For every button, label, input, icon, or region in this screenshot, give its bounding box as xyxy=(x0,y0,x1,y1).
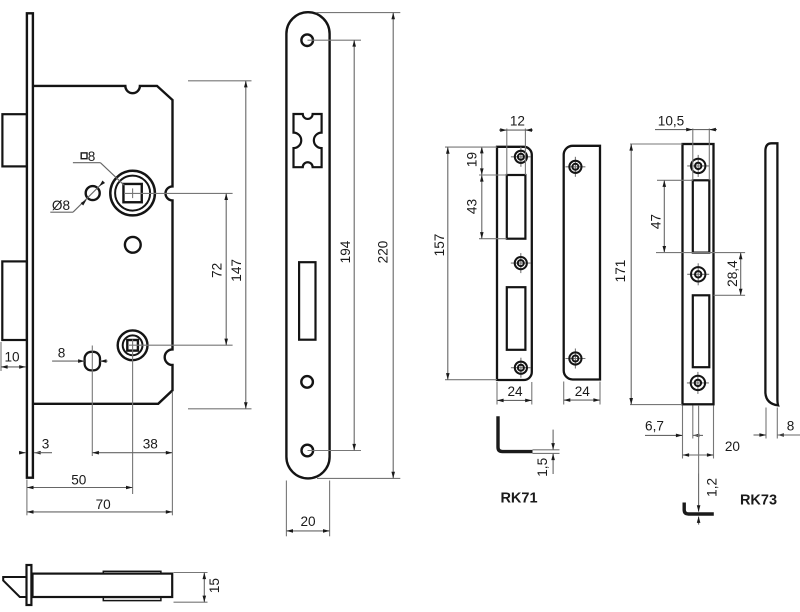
svg-text:171: 171 xyxy=(613,260,628,283)
svg-text:43: 43 xyxy=(464,199,479,214)
svg-text:50: 50 xyxy=(71,473,87,488)
svg-text:19: 19 xyxy=(464,152,479,167)
svg-text:20: 20 xyxy=(725,439,741,454)
svg-text:10: 10 xyxy=(4,350,20,365)
svg-text:15: 15 xyxy=(207,578,222,593)
svg-text:12: 12 xyxy=(510,113,525,128)
svg-text:8: 8 xyxy=(58,346,66,361)
svg-text:Ø8: Ø8 xyxy=(52,198,70,213)
svg-text:6,7: 6,7 xyxy=(645,419,664,434)
svg-text:70: 70 xyxy=(96,497,112,512)
svg-text:10,5: 10,5 xyxy=(658,113,684,128)
svg-text:8: 8 xyxy=(88,149,96,164)
svg-text:8: 8 xyxy=(787,419,795,434)
svg-text:1,2: 1,2 xyxy=(705,478,720,497)
svg-text:RK73: RK73 xyxy=(740,493,777,509)
svg-text:157: 157 xyxy=(432,234,447,257)
svg-text:24: 24 xyxy=(507,384,523,399)
svg-text:72: 72 xyxy=(209,263,224,278)
svg-text:194: 194 xyxy=(338,240,353,263)
svg-text:47: 47 xyxy=(649,214,664,229)
svg-text:3: 3 xyxy=(42,436,50,451)
svg-text:1,5: 1,5 xyxy=(535,458,550,477)
svg-text:147: 147 xyxy=(229,259,244,282)
svg-text:20: 20 xyxy=(300,514,316,529)
svg-text:RK71: RK71 xyxy=(500,490,537,506)
svg-text:28,4: 28,4 xyxy=(725,260,740,287)
svg-text:38: 38 xyxy=(143,436,158,451)
svg-text:220: 220 xyxy=(375,240,390,263)
svg-text:24: 24 xyxy=(575,384,591,399)
